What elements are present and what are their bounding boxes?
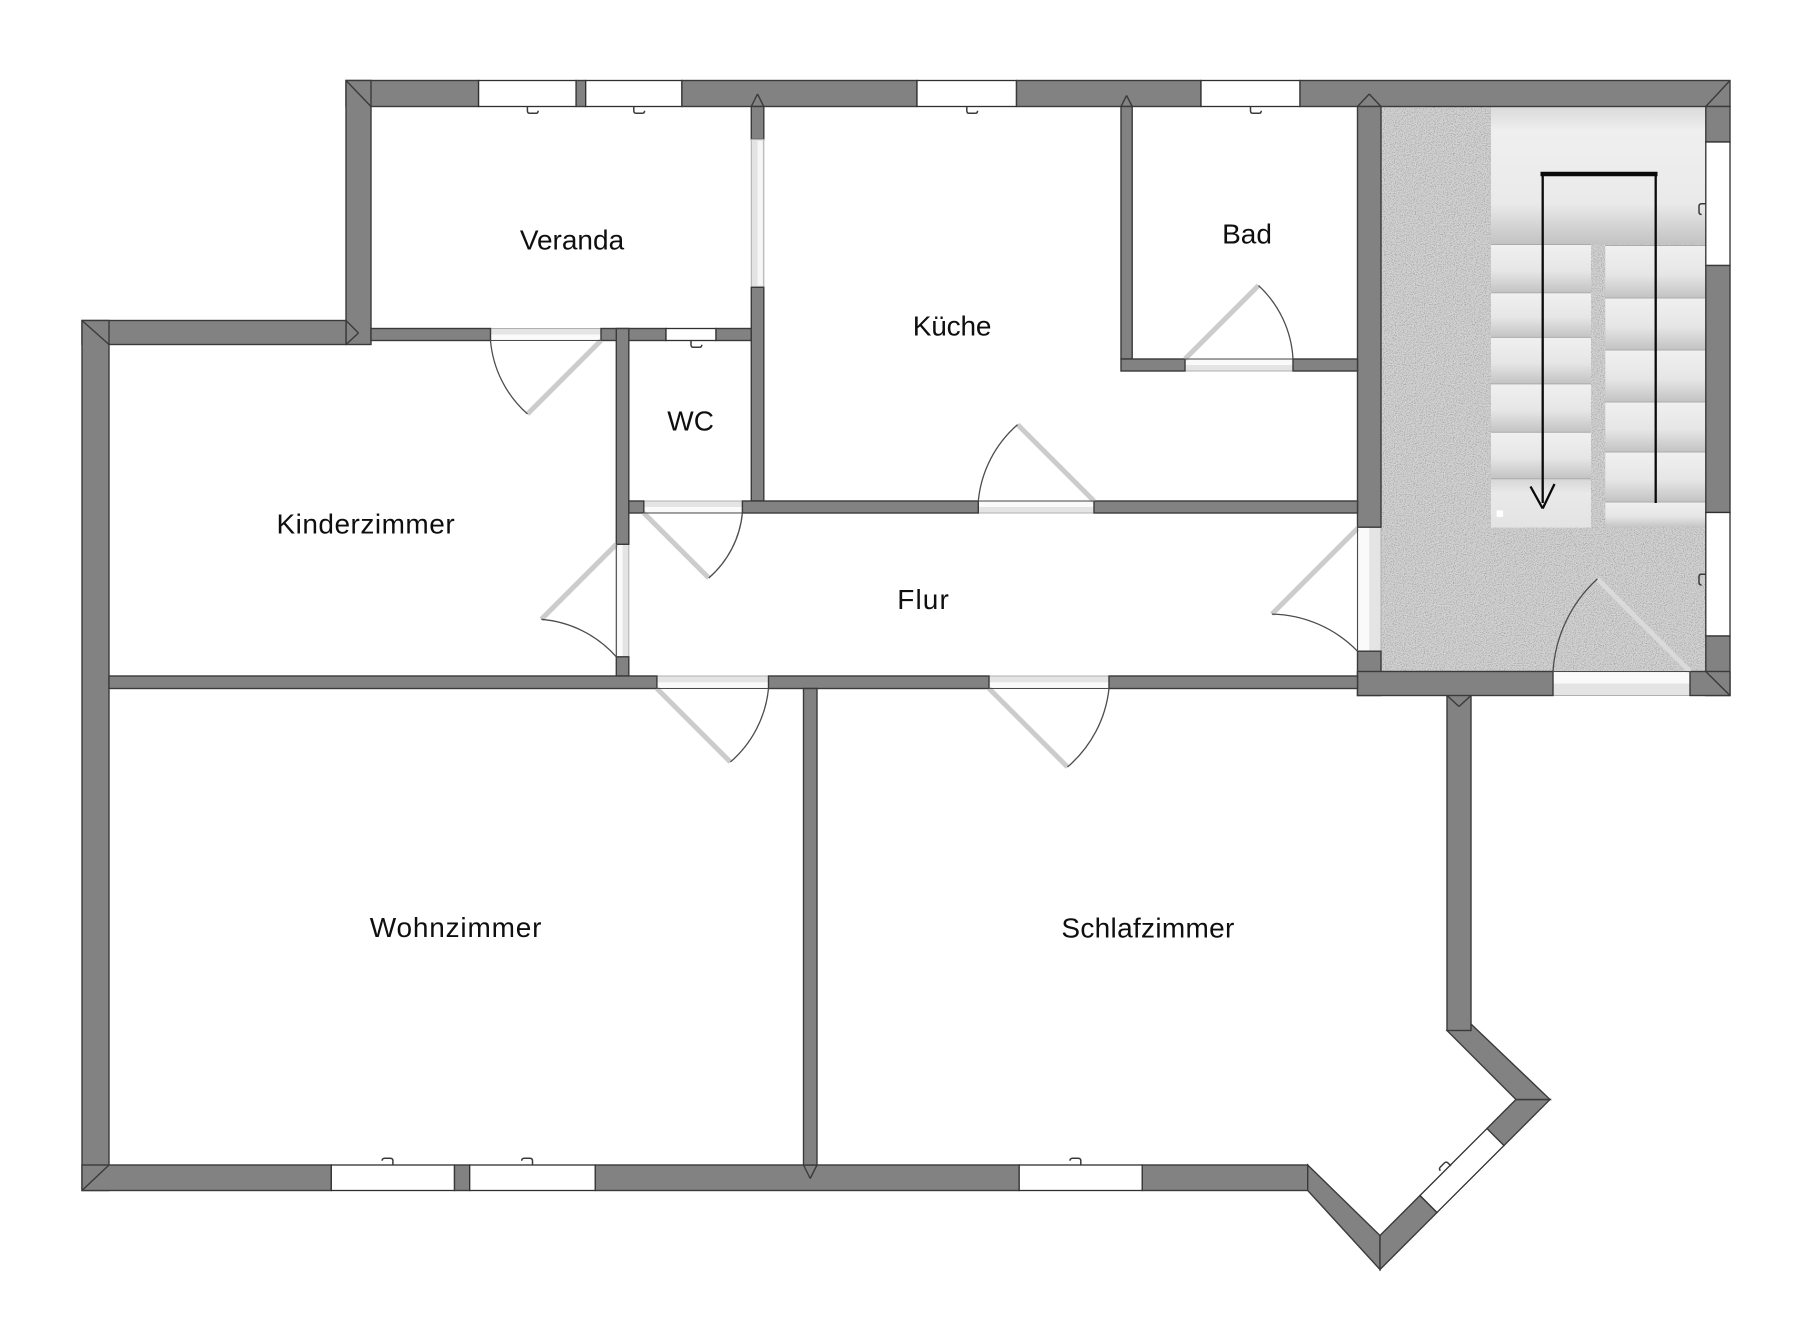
svg-text:Veranda: Veranda <box>520 225 625 256</box>
svg-text:Wohnzimmer: Wohnzimmer <box>370 912 542 943</box>
svg-text:Kinderzimmer: Kinderzimmer <box>276 509 455 540</box>
svg-text:Schlafzimmer: Schlafzimmer <box>1061 913 1234 944</box>
svg-text:WC: WC <box>667 406 714 437</box>
svg-text:Küche: Küche <box>913 311 991 342</box>
svg-text:Flur: Flur <box>897 584 950 615</box>
svg-text:Bad: Bad <box>1222 219 1272 250</box>
